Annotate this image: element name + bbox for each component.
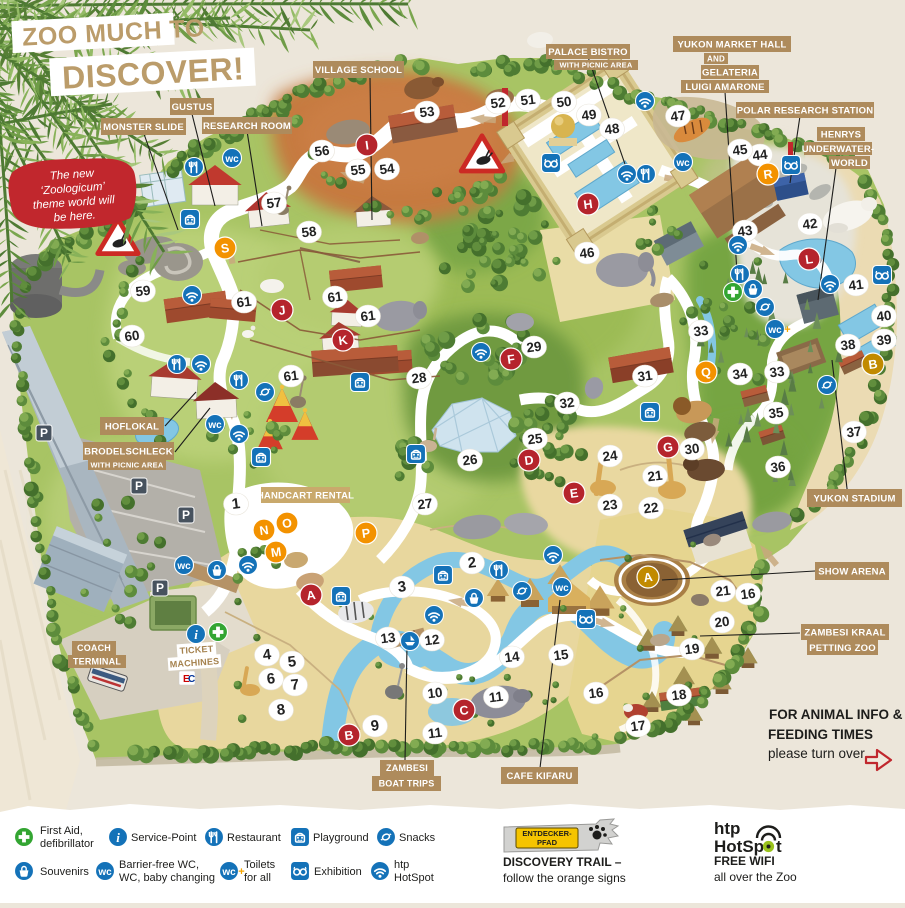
svg-text:15: 15 bbox=[553, 647, 570, 664]
svg-text:R: R bbox=[763, 167, 774, 182]
svg-text:Playground: Playground bbox=[313, 832, 369, 844]
svg-text:P: P bbox=[40, 426, 48, 440]
svg-text:please turn over: please turn over bbox=[768, 746, 865, 761]
svg-text:YUKON STADIUM: YUKON STADIUM bbox=[813, 493, 895, 504]
svg-text:POLAR RESEARCH STATION: POLAR RESEARCH STATION bbox=[737, 105, 874, 116]
svg-text:10: 10 bbox=[427, 685, 444, 702]
svg-text:BRODELSCHLECK: BRODELSCHLECK bbox=[84, 446, 173, 457]
svg-text:for all: for all bbox=[244, 872, 271, 884]
svg-text:33: 33 bbox=[769, 364, 786, 381]
svg-text:Exhibition: Exhibition bbox=[314, 866, 362, 878]
svg-text:32: 32 bbox=[559, 395, 576, 412]
svg-text:48: 48 bbox=[604, 121, 621, 138]
svg-text:GELATERIA: GELATERIA bbox=[702, 67, 758, 78]
svg-text:26: 26 bbox=[462, 452, 479, 469]
svg-text:UNDERWATER-: UNDERWATER- bbox=[802, 144, 875, 155]
svg-text:57: 57 bbox=[266, 195, 283, 212]
svg-text:wc: wc bbox=[97, 867, 112, 878]
svg-text:C: C bbox=[459, 703, 470, 718]
svg-text:LUIGI AMARONE: LUIGI AMARONE bbox=[685, 82, 764, 93]
svg-text:29: 29 bbox=[526, 339, 543, 356]
svg-text:all over the Zoo: all over the Zoo bbox=[714, 870, 797, 884]
svg-text:BOAT TRIPS: BOAT TRIPS bbox=[379, 779, 435, 789]
svg-text:11: 11 bbox=[488, 689, 504, 706]
svg-text:54: 54 bbox=[379, 161, 396, 178]
svg-text:i: i bbox=[194, 627, 198, 642]
svg-text:60: 60 bbox=[124, 328, 141, 345]
svg-text:defibrillator: defibrillator bbox=[40, 838, 94, 850]
svg-text:First Aid,: First Aid, bbox=[40, 825, 83, 837]
svg-text:ZAMBESI: ZAMBESI bbox=[386, 763, 428, 773]
svg-text:21: 21 bbox=[647, 468, 664, 485]
svg-text:+: + bbox=[784, 324, 790, 336]
svg-text:DISCOVERY TRAIL –: DISCOVERY TRAIL – bbox=[503, 855, 622, 869]
svg-text:WITH PICNIC AREA: WITH PICNIC AREA bbox=[91, 461, 164, 470]
svg-text:Restaurant: Restaurant bbox=[227, 832, 281, 844]
svg-text:61: 61 bbox=[327, 289, 344, 306]
svg-text:13: 13 bbox=[380, 630, 397, 647]
svg-text:24: 24 bbox=[602, 448, 619, 465]
svg-text:21: 21 bbox=[715, 583, 732, 600]
svg-text:htp: htp bbox=[714, 819, 740, 838]
svg-text:wc: wc bbox=[675, 158, 690, 169]
svg-text:WC, baby changing: WC, baby changing bbox=[119, 872, 215, 884]
svg-text:wc: wc bbox=[224, 154, 239, 165]
svg-text:17: 17 bbox=[630, 718, 647, 735]
svg-text:HENRYS: HENRYS bbox=[821, 129, 861, 140]
svg-text:wc: wc bbox=[221, 867, 236, 878]
svg-text:t: t bbox=[776, 837, 782, 856]
svg-text:40: 40 bbox=[876, 308, 893, 325]
svg-text:16: 16 bbox=[588, 685, 605, 702]
svg-text:20: 20 bbox=[714, 614, 731, 631]
svg-text:HOFLOKAL: HOFLOKAL bbox=[105, 421, 159, 432]
svg-text:49: 49 bbox=[581, 107, 598, 124]
svg-text:CAFE KIFARU: CAFE KIFARU bbox=[506, 771, 572, 782]
svg-text:B: B bbox=[868, 357, 879, 372]
svg-text:41: 41 bbox=[848, 277, 865, 294]
svg-text:Toilets: Toilets bbox=[244, 859, 276, 871]
svg-text:PETTING ZOO: PETTING ZOO bbox=[809, 643, 876, 654]
svg-text:34: 34 bbox=[732, 366, 749, 383]
svg-text:61: 61 bbox=[283, 368, 300, 385]
svg-text:TERMINAL: TERMINAL bbox=[73, 657, 121, 667]
svg-text:SHOW ARENA: SHOW ARENA bbox=[818, 566, 886, 577]
svg-text:Snacks: Snacks bbox=[399, 832, 436, 844]
svg-text:Souvenirs: Souvenirs bbox=[40, 866, 89, 878]
svg-text:61: 61 bbox=[360, 308, 377, 325]
svg-text:follow the orange signs: follow the orange signs bbox=[503, 871, 626, 885]
svg-text:25: 25 bbox=[527, 431, 544, 448]
svg-text:P: P bbox=[182, 508, 190, 522]
svg-text:52: 52 bbox=[490, 95, 507, 112]
svg-text:D: D bbox=[524, 453, 535, 468]
svg-text:PALACE BISTRO: PALACE BISTRO bbox=[548, 47, 627, 58]
svg-text:wc: wc bbox=[554, 583, 569, 594]
svg-text:19: 19 bbox=[684, 641, 701, 658]
svg-text:COACH: COACH bbox=[77, 643, 111, 653]
svg-text:22: 22 bbox=[643, 500, 660, 517]
svg-text:35: 35 bbox=[768, 405, 785, 422]
svg-text:HANDCART RENTAL: HANDCART RENTAL bbox=[257, 490, 354, 501]
svg-text:VILLAGE SCHOOL: VILLAGE SCHOOL bbox=[315, 65, 402, 76]
svg-text:30: 30 bbox=[684, 441, 701, 458]
svg-text:45: 45 bbox=[732, 142, 749, 159]
svg-text:C: C bbox=[188, 674, 195, 685]
svg-text:ENTDECKER-: ENTDECKER- bbox=[522, 829, 572, 838]
svg-text:K: K bbox=[338, 333, 349, 348]
svg-text:55: 55 bbox=[350, 162, 367, 179]
svg-text:33: 33 bbox=[693, 323, 710, 340]
svg-text:59: 59 bbox=[135, 283, 152, 300]
svg-text:FEEDING TIMES: FEEDING TIMES bbox=[768, 727, 873, 742]
svg-text:12: 12 bbox=[424, 632, 441, 649]
svg-text:P: P bbox=[156, 581, 164, 595]
svg-text:53: 53 bbox=[419, 104, 436, 121]
svg-text:46: 46 bbox=[579, 245, 596, 262]
svg-text:RESEARCH ROOM: RESEARCH ROOM bbox=[203, 121, 291, 132]
svg-text:wc: wc bbox=[767, 325, 782, 336]
svg-text:50: 50 bbox=[556, 94, 573, 111]
svg-text:wc: wc bbox=[176, 561, 191, 572]
svg-text:38: 38 bbox=[840, 337, 857, 354]
svg-text:PFAD: PFAD bbox=[537, 838, 558, 847]
svg-text:B: B bbox=[344, 728, 355, 743]
svg-text:P: P bbox=[135, 479, 143, 493]
svg-text:44: 44 bbox=[752, 147, 769, 164]
svg-text:Service-Point: Service-Point bbox=[131, 832, 196, 844]
svg-text:htp: htp bbox=[394, 859, 409, 871]
svg-text:FREE WIFI: FREE WIFI bbox=[714, 854, 775, 868]
svg-text:N: N bbox=[259, 523, 270, 538]
svg-text:23: 23 bbox=[602, 497, 619, 514]
svg-text:42: 42 bbox=[802, 216, 819, 233]
svg-text:A: A bbox=[306, 588, 317, 603]
svg-text:51: 51 bbox=[520, 92, 537, 109]
svg-text:14: 14 bbox=[504, 649, 521, 666]
svg-text:WORLD: WORLD bbox=[831, 158, 868, 169]
svg-text:47: 47 bbox=[670, 108, 687, 125]
svg-text:M: M bbox=[270, 545, 282, 560]
svg-text:HotSpot: HotSpot bbox=[394, 872, 434, 884]
svg-text:WITH PICNIC AREA: WITH PICNIC AREA bbox=[560, 61, 633, 70]
svg-text:58: 58 bbox=[301, 224, 318, 241]
svg-text:i: i bbox=[116, 830, 120, 845]
svg-text:61: 61 bbox=[236, 294, 253, 311]
svg-text:AND: AND bbox=[707, 54, 725, 63]
svg-text:A: A bbox=[643, 570, 654, 585]
svg-text:56: 56 bbox=[314, 143, 331, 160]
svg-text:G: G bbox=[662, 440, 674, 455]
svg-text:39: 39 bbox=[876, 332, 893, 349]
svg-text:37: 37 bbox=[846, 424, 863, 441]
svg-text:27: 27 bbox=[417, 496, 434, 513]
svg-text:GUSTUS: GUSTUS bbox=[172, 102, 213, 113]
svg-text:36: 36 bbox=[770, 459, 787, 476]
svg-text:16: 16 bbox=[740, 586, 757, 603]
svg-text:28: 28 bbox=[411, 370, 428, 387]
svg-text:MONSTER SLIDE: MONSTER SLIDE bbox=[103, 122, 184, 133]
svg-text:18: 18 bbox=[671, 687, 688, 704]
svg-text:H: H bbox=[583, 197, 594, 212]
svg-text:wc: wc bbox=[207, 420, 222, 431]
svg-text:Barrier-free WC,: Barrier-free WC, bbox=[119, 859, 199, 871]
svg-text:FOR ANIMAL INFO &: FOR ANIMAL INFO & bbox=[769, 707, 903, 722]
svg-text:ZAMBESI KRAAL: ZAMBESI KRAAL bbox=[804, 627, 885, 638]
svg-text:31: 31 bbox=[637, 368, 654, 385]
svg-text:YUKON MARKET HALL: YUKON MARKET HALL bbox=[678, 39, 787, 50]
svg-text:11: 11 bbox=[427, 725, 443, 742]
